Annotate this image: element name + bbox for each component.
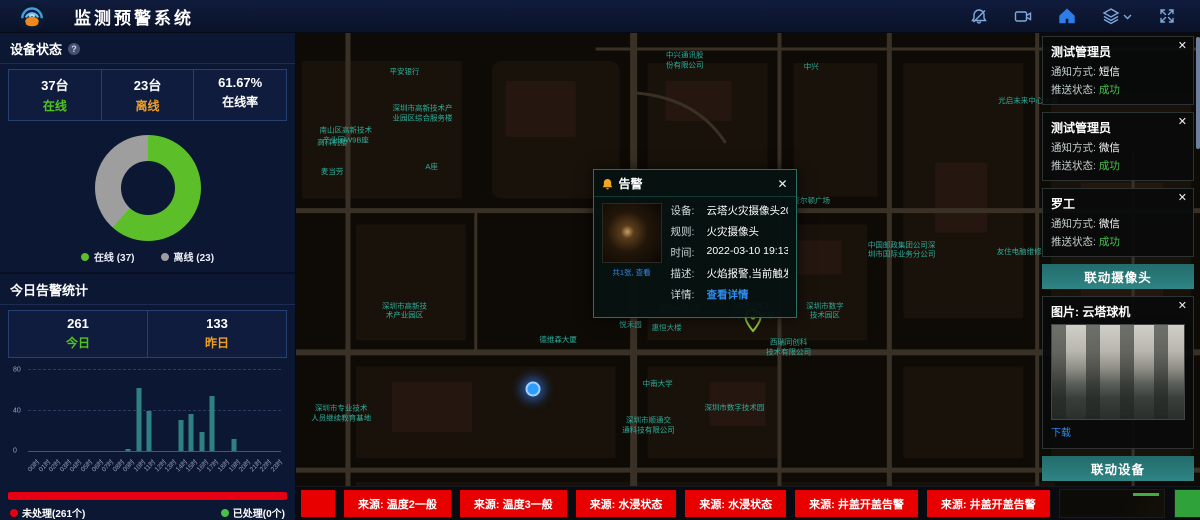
map-label: 友住电脑维修 <box>997 247 1042 257</box>
card-field: 推送状态:成功 <box>1051 82 1185 97</box>
bell-muted-icon[interactable] <box>970 7 988 25</box>
card-field: 通知方式:微信 <box>1051 140 1185 155</box>
card-field: 通知方式:微信 <box>1051 216 1185 231</box>
camera-snapshot[interactable] <box>1051 324 1185 420</box>
alert-ticker-item[interactable]: 来源: 水浸状态 <box>685 490 786 517</box>
unprocessed-progress-bar <box>8 492 287 500</box>
card-field: 推送状态:成功 <box>1051 234 1185 249</box>
app-logo-icon <box>10 1 54 31</box>
hourly-alert-chart: 0408000时01时02时03时04时05时06时07时08时09时10时11… <box>12 362 285 484</box>
view-details-link[interactable]: 查看详情 <box>707 287 749 302</box>
chevron-down-icon <box>1123 7 1132 25</box>
video-thumbnail[interactable] <box>1059 489 1165 518</box>
alert-ticker-item[interactable]: 来源: 水浸状态 <box>576 490 677 517</box>
bar <box>147 411 152 452</box>
video-camera-icon[interactable] <box>1014 7 1032 25</box>
map-label: 高科机楼 <box>317 138 347 148</box>
page-title: 监测预警系统 <box>74 4 194 29</box>
info-icon[interactable]: ? <box>68 43 80 55</box>
map-label: 深圳市数字技术园 <box>704 403 764 413</box>
bar <box>210 396 215 451</box>
alert-bar-plot: 0408000时01时02时03时04时05时06时07时08时09时10时11… <box>28 370 281 452</box>
stat-cell: 23台离线 <box>102 70 195 120</box>
layers-menu[interactable] <box>1102 7 1132 25</box>
download-link[interactable]: 下载 <box>1051 424 1071 439</box>
stat-cell: 261今日 <box>9 311 148 357</box>
map-label: 查尔顿广场 <box>793 196 831 206</box>
close-icon[interactable]: ✕ <box>1178 117 1187 128</box>
card-field: 推送状态:成功 <box>1051 158 1185 173</box>
device-status-section: 设备状态 ? 37台在线23台离线61.67%在线率 在线 (37)离线 (23… <box>0 33 295 272</box>
stat-cell: 37台在线 <box>9 70 102 120</box>
notification-card: 测试管理员✕通知方式:微信推送状态:成功 <box>1042 112 1194 181</box>
alert-ticker-item[interactable]: 来源: 温度3一般 <box>460 490 567 517</box>
device-donut <box>95 135 201 241</box>
map-label: 中国邮政集团公司深 圳市国际业务分公司 <box>868 240 936 260</box>
card-field: 通知方式:短信 <box>1051 64 1185 79</box>
stat-cell: 61.67%在线率 <box>194 70 286 120</box>
close-icon[interactable]: ✕ <box>1178 301 1187 312</box>
bar <box>199 432 204 451</box>
green-screen-thumbnail[interactable] <box>1174 489 1200 518</box>
map-label: 悦禾园 <box>619 320 642 330</box>
device-status-title: 设备状态 <box>10 39 62 58</box>
alert-ticker-item[interactable]: 来源: 井盖开盖告警 <box>927 490 1050 517</box>
left-stats-panel: 设备状态 ? 37台在线23台离线61.67%在线率 在线 (37)离线 (23… <box>0 33 296 520</box>
alert-popup: 告警 ✕ 共1张, 查看 设备:云塔火灾摄像头202规则:火灾摄像头时间:202… <box>593 169 797 318</box>
unprocessed-legend: 未处理(261个) <box>10 505 85 520</box>
layers-icon[interactable] <box>1102 7 1120 25</box>
alert-ticker-item[interactable]: 来源: 温度2一般 <box>344 490 451 517</box>
device-stats: 37台在线23台离线61.67%在线率 <box>8 69 287 121</box>
alert-ticker-item[interactable] <box>301 490 335 517</box>
alert-ticker-item[interactable]: 来源: 井盖开盖告警 <box>795 490 918 517</box>
camera-card: 图片: 云塔球机 ✕ 下载 <box>1042 296 1194 449</box>
fullscreen-icon[interactable] <box>1158 7 1176 25</box>
notification-cards: 测试管理员✕通知方式:短信推送状态:成功测试管理员✕通知方式:微信推送状态:成功… <box>1042 36 1194 257</box>
today-stats: 261今日133昨日 <box>8 310 287 358</box>
linked-cameras-banner: 联动摄像头 <box>1042 264 1194 289</box>
device-location-dot[interactable] <box>525 381 540 396</box>
linked-devices-banner: 联动设备 <box>1042 456 1194 481</box>
map-label: 深圳市专业技术 人员继续教育基地 <box>311 403 371 423</box>
map-label: A座 <box>425 162 438 172</box>
legend-item: 离线 (23) <box>161 249 215 264</box>
popup-field: 设备:云塔火灾摄像头202 <box>671 203 788 218</box>
map-label: 中兴 <box>804 62 819 72</box>
right-notification-column: 测试管理员✕通知方式:短信推送状态:成功测试管理员✕通知方式:微信推送状态:成功… <box>1042 36 1194 486</box>
map-label: 平安银行 <box>389 67 419 77</box>
legend-item: 在线 (37) <box>81 249 135 264</box>
map-area: 南山区高新技术 产业园W9B座平安银行深圳市高新技术产 业园区综合服务楼高科机楼… <box>296 33 1200 520</box>
map-label: 中南大学 <box>643 379 673 389</box>
map-label: 德维森大厦 <box>539 335 577 345</box>
map-label: 麦当劳 <box>321 167 344 177</box>
donut-legend: 在线 (37)离线 (23) <box>0 249 295 272</box>
camera-card-title: 图片: 云塔球机 <box>1051 303 1185 320</box>
popup-field: 时间:2022-03-10 19:13:07 <box>671 245 788 260</box>
bar <box>231 439 236 451</box>
popup-field: 详情:查看详情 <box>671 287 788 302</box>
bar <box>189 414 194 451</box>
top-header: 监测预警系统 <box>0 0 1200 33</box>
alarm-bell-icon <box>602 178 613 190</box>
map-label: 中兴通讯股 份有限公司 <box>666 50 704 70</box>
close-icon[interactable]: ✕ <box>777 178 787 190</box>
map-label: 西瑞同创科 技术有限公司 <box>766 337 811 357</box>
map-label: 南山区高新技术 产业园W9B座 <box>319 126 372 146</box>
map-label: 深圳市数字 技术园区 <box>806 301 844 321</box>
app-window: 监测预警系统 <box>0 0 1200 520</box>
scrollbar[interactable] <box>1196 37 1200 149</box>
home-icon[interactable] <box>1058 7 1076 25</box>
map-label: 深圳市高新技术产 业园区综合服务楼 <box>393 104 453 124</box>
map-label: 深圳市高新技 术产业园区 <box>382 301 427 321</box>
map-label: 深圳市顺通交 通科技有限公司 <box>622 415 675 435</box>
popup-field: 描述:火焰报警,当前触发值为... <box>671 266 788 281</box>
bar <box>178 420 183 451</box>
today-alerts-section: 今日告警统计 261今日133昨日 0408000时01时02时03时04时05… <box>0 272 295 520</box>
today-alerts-title: 今日告警统计 <box>10 280 88 299</box>
bar <box>136 388 141 451</box>
stat-cell: 133昨日 <box>148 311 286 357</box>
map-label: 惠恒大楼 <box>652 323 682 333</box>
popup-title: 告警 <box>619 175 643 192</box>
bar <box>126 449 131 451</box>
notification-card: 测试管理员✕通知方式:短信推送状态:成功 <box>1042 36 1194 105</box>
ticker-items: 来源: 温度2一般来源: 温度3一般来源: 水浸状态来源: 水浸状态来源: 井盖… <box>344 490 1050 517</box>
popup-fields: 设备:云塔火灾摄像头202规则:火灾摄像头时间:2022-03-10 19:13… <box>671 203 788 308</box>
popup-field: 规则:火灾摄像头 <box>671 224 788 239</box>
close-icon[interactable]: ✕ <box>1178 193 1187 204</box>
alert-ticker-bar: 来源: 温度2一般来源: 温度3一般来源: 水浸状态来源: 水浸状态来源: 井盖… <box>296 486 1200 520</box>
thumbnail-caption[interactable]: 共1张, 查看 <box>602 267 662 278</box>
alert-snapshot-thumbnail[interactable] <box>602 203 662 263</box>
processed-legend: 已处理(0个) <box>221 505 285 520</box>
close-icon[interactable]: ✕ <box>1178 41 1187 52</box>
notification-card: 罗工✕通知方式:微信推送状态:成功 <box>1042 188 1194 257</box>
